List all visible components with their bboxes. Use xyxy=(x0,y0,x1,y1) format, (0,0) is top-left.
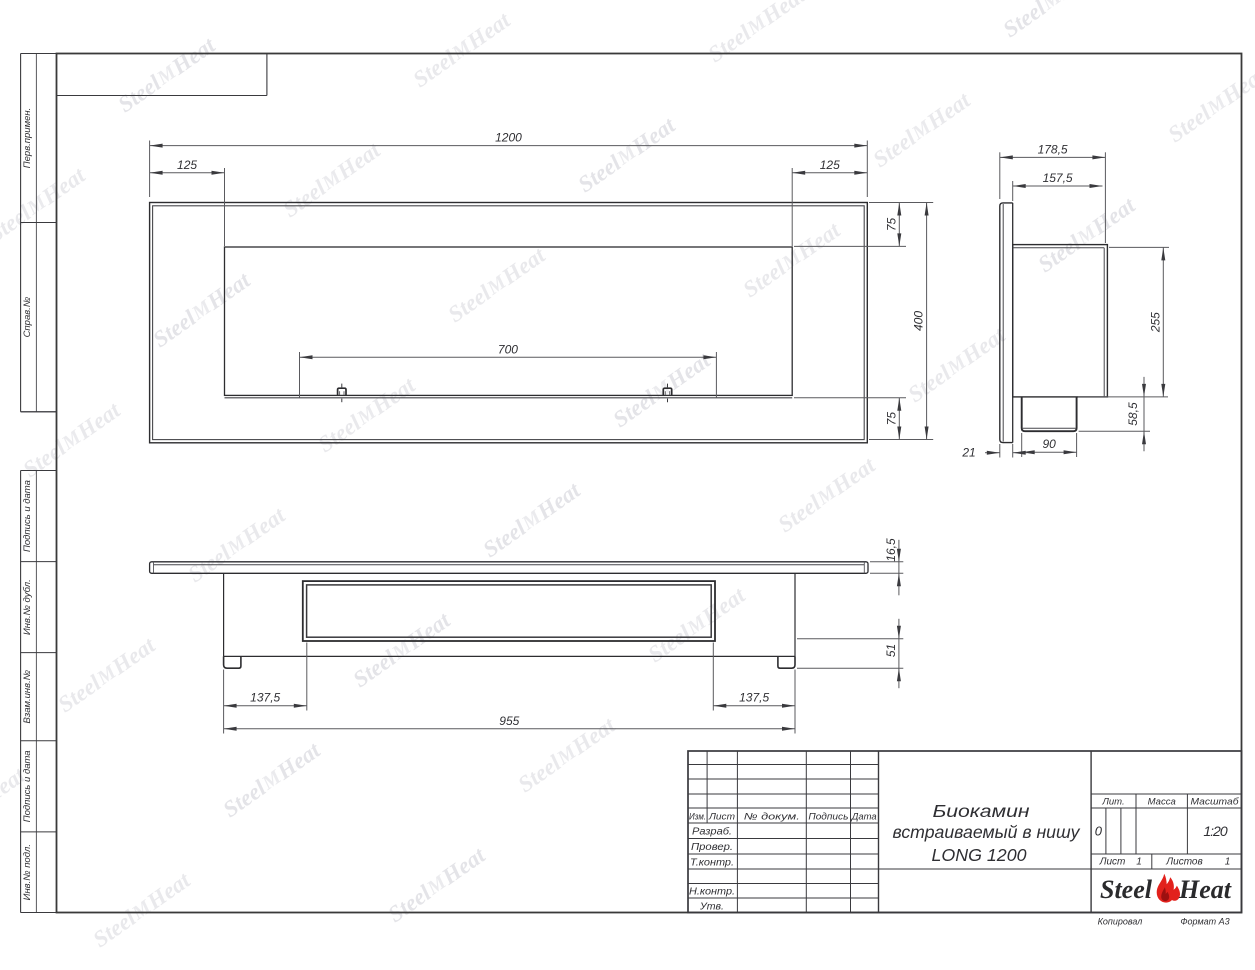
svg-text:Взам.инв.№: Взам.инв.№ xyxy=(22,670,33,723)
svg-text:Подпись и дата: Подпись и дата xyxy=(22,480,33,552)
svg-text:0: 0 xyxy=(1095,824,1103,839)
svg-text:Т.контр.: Т.контр. xyxy=(690,858,734,869)
svg-text:Перв.примен.: Перв.примен. xyxy=(22,108,33,169)
svg-text:955: 955 xyxy=(499,714,519,728)
svg-text:Изм.: Изм. xyxy=(689,812,706,823)
svg-text:Провер.: Провер. xyxy=(691,842,733,853)
svg-text:Дата: Дата xyxy=(851,812,877,823)
svg-text:Лист: Лист xyxy=(1099,857,1126,868)
svg-text:Формат А3: Формат А3 xyxy=(1180,917,1229,927)
svg-text:21: 21 xyxy=(961,446,975,460)
svg-text:137,5: 137,5 xyxy=(250,691,280,705)
svg-text:255: 255 xyxy=(1148,312,1162,333)
svg-text:Лист: Лист xyxy=(708,812,735,823)
svg-text:Инв.№ подл.: Инв.№ подл. xyxy=(22,844,33,900)
svg-text:157,5: 157,5 xyxy=(1043,171,1073,185)
svg-text:16,5: 16,5 xyxy=(884,538,898,562)
svg-text:Разраб.: Разраб. xyxy=(692,826,732,838)
svg-text:LONG 1200: LONG 1200 xyxy=(932,845,1027,865)
svg-text:Справ.№: Справ.№ xyxy=(22,297,33,338)
svg-text:125: 125 xyxy=(820,158,840,172)
svg-text:700: 700 xyxy=(498,342,518,356)
svg-text:1: 1 xyxy=(1136,857,1142,868)
svg-text:125: 125 xyxy=(177,158,197,172)
svg-text:137,5: 137,5 xyxy=(739,691,769,705)
svg-text:Лит.: Лит. xyxy=(1101,797,1124,808)
svg-text:Копировал: Копировал xyxy=(1098,917,1143,927)
svg-text:Утв.: Утв. xyxy=(699,902,724,913)
svg-text:75: 75 xyxy=(884,412,898,426)
svg-text:51: 51 xyxy=(884,644,898,657)
svg-text:Инв.№ дубл.: Инв.№ дубл. xyxy=(22,579,33,635)
svg-text:Биокамин: Биокамин xyxy=(933,801,1030,821)
svg-text:Подпись: Подпись xyxy=(808,812,848,823)
svg-text:Подпись и дата: Подпись и дата xyxy=(22,750,33,822)
svg-text:75: 75 xyxy=(884,217,898,231)
svg-text:Н.контр.: Н.контр. xyxy=(689,887,735,898)
svg-text:встраиваемый в нишу: встраиваемый в нишу xyxy=(893,822,1081,842)
svg-text:Heat: Heat xyxy=(1178,875,1232,904)
svg-text:Масштаб: Масштаб xyxy=(1191,797,1240,808)
svg-text:1:20: 1:20 xyxy=(1203,823,1227,839)
svg-text:№ докум.: № докум. xyxy=(744,812,800,823)
svg-text:Steel: Steel xyxy=(1100,875,1153,904)
svg-text:Листов: Листов xyxy=(1165,857,1202,868)
svg-text:1200: 1200 xyxy=(495,131,522,145)
svg-text:90: 90 xyxy=(1042,437,1056,451)
svg-text:58,5: 58,5 xyxy=(1126,402,1140,426)
svg-text:178,5: 178,5 xyxy=(1038,142,1068,156)
svg-text:1: 1 xyxy=(1225,857,1231,868)
svg-text:Масса: Масса xyxy=(1148,797,1176,808)
svg-text:400: 400 xyxy=(912,311,926,331)
